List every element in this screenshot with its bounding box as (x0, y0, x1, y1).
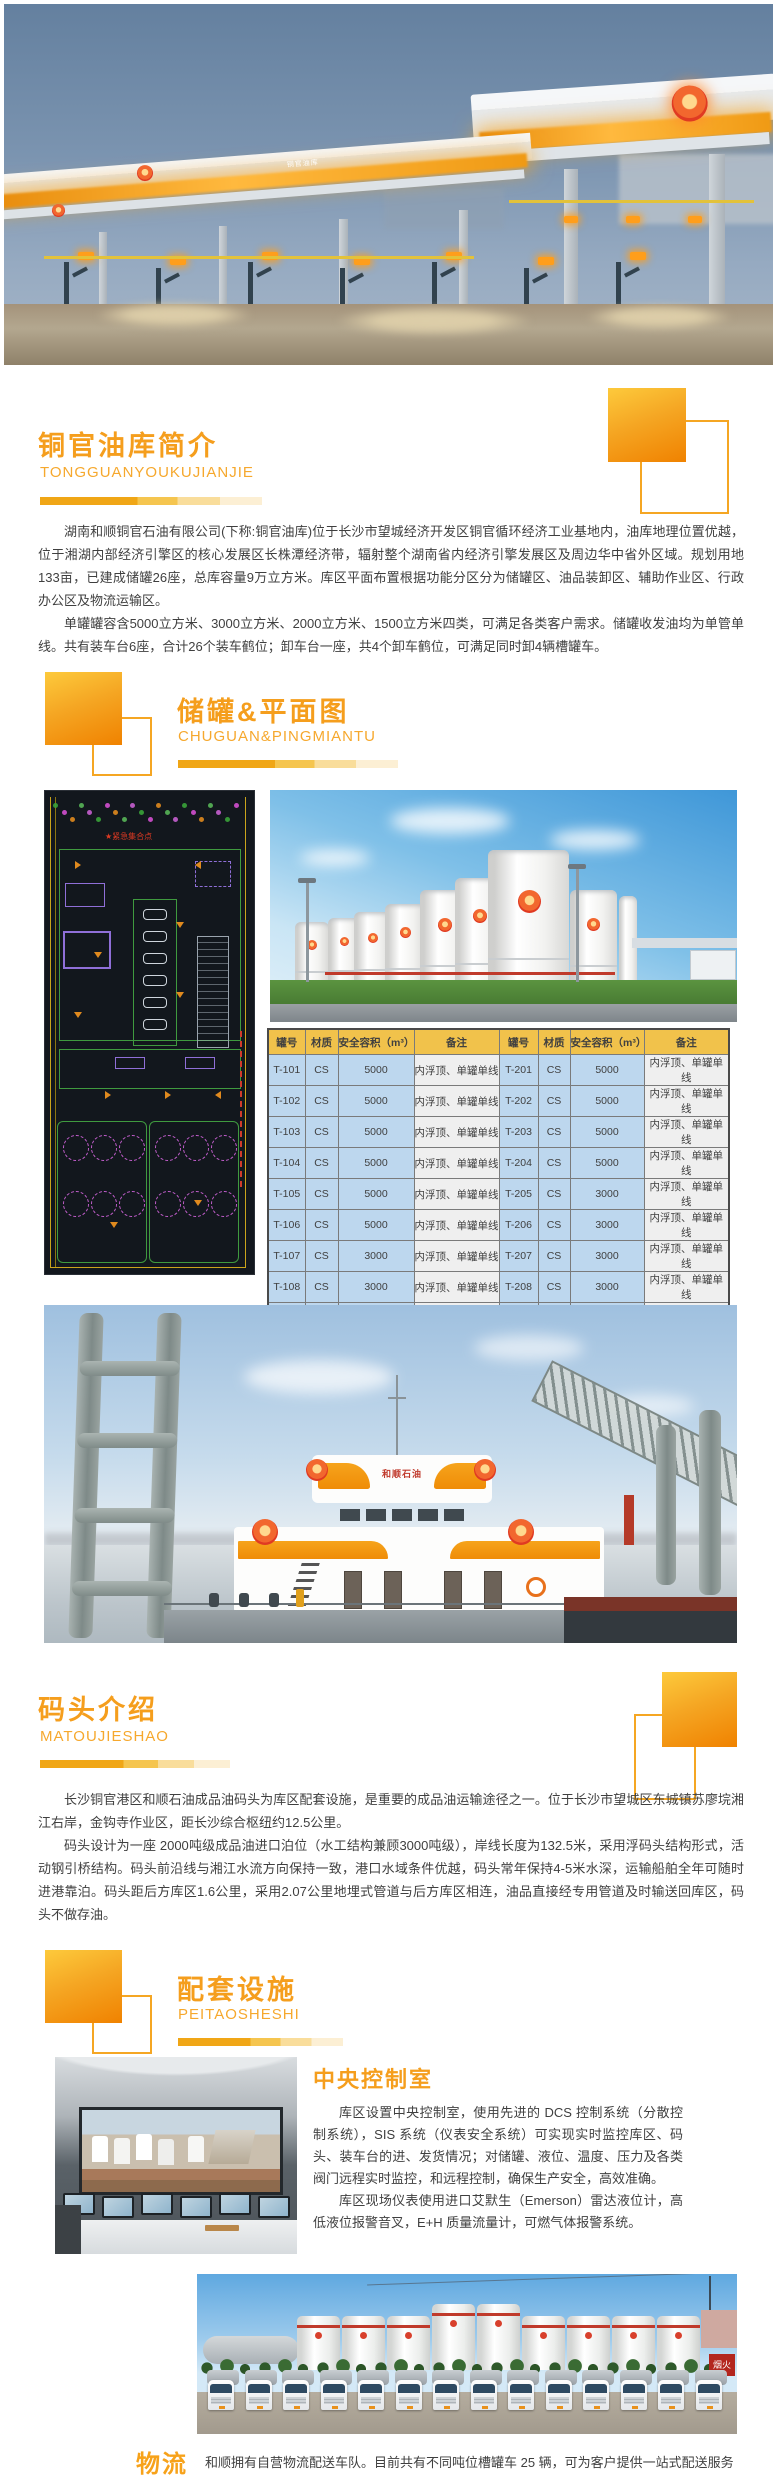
dock-ship-photo: 和顺石油 (44, 1305, 737, 1643)
tank-flower-logo (473, 909, 487, 923)
tanker-truck (580, 2370, 614, 2414)
table-cell: 内浮顶、单罐单线 (644, 1241, 729, 1272)
table-row: T-103CS5000内浮顶、单罐单线T-203CS5000内浮顶、单罐单线 (268, 1117, 729, 1148)
table-cell: T-106 (268, 1210, 305, 1241)
deck-railing (164, 1603, 604, 1605)
table-cell: T-202 (499, 1086, 538, 1117)
table-cell: 内浮顶、单罐单线 (414, 1117, 499, 1148)
table-header-cell: 安全容积（m³） (338, 1029, 414, 1055)
control-room-photo (55, 2057, 297, 2254)
control-room-title: 中央控制室 (313, 2062, 433, 2094)
tanker-truck-row (197, 2274, 737, 2434)
table-cell: 5000 (570, 1148, 644, 1179)
table-cell: T-203 (499, 1117, 538, 1148)
intro-subtitle: TONGGUANYOUKUJIANJIE (40, 464, 254, 481)
table-cell: CS (538, 1241, 570, 1272)
tanker-truck (318, 2370, 352, 2414)
table-cell: CS (538, 1117, 570, 1148)
table-row: T-108CS3000内浮顶、单罐单线T-208CS3000内浮顶、单罐单线 (268, 1272, 729, 1303)
tanker-truck (280, 2370, 314, 2414)
ship-hull (564, 1597, 737, 1643)
dock-subtitle: MATOUJIESHAO (40, 1728, 169, 1745)
tanker-truck (355, 2370, 389, 2414)
control-room-paragraphs: 库区设置中央控制室，使用先进的 DCS 控制系统（分散控制系统），SIS 系统（… (313, 2102, 683, 2234)
table-cell: 内浮顶、单罐单线 (644, 1086, 729, 1117)
bollard (269, 1593, 279, 1607)
table-cell: T-103 (268, 1117, 305, 1148)
gangway-column (656, 1425, 676, 1585)
table-cell: 3000 (570, 1210, 644, 1241)
table-cell: CS (538, 1086, 570, 1117)
cabinet (55, 2205, 81, 2254)
table-header-cell: 材质 (305, 1029, 338, 1055)
table-cell: T-105 (268, 1179, 305, 1210)
facilities-deco-square (45, 1950, 122, 2023)
table-cell: CS (305, 1086, 338, 1117)
yellow-hydrant (296, 1589, 304, 1607)
keyboard (205, 2225, 239, 2231)
table-header-cell: 罐号 (268, 1029, 305, 1055)
light-pool (94, 302, 254, 328)
tank-flower-logo (518, 890, 541, 913)
tank-farm-photo (270, 790, 737, 1022)
table-header-cell: 备注 (414, 1029, 499, 1055)
table-cell: 内浮顶、单罐单线 (414, 1086, 499, 1117)
tanker-truck (505, 2370, 539, 2414)
hero-photo: 铜官油库 (4, 4, 773, 365)
tank-flower-logo (340, 937, 349, 946)
table-cell: T-108 (268, 1272, 305, 1303)
light-pool (584, 304, 734, 330)
table-header-cell: 备注 (644, 1029, 729, 1055)
tanks-underline-bar (178, 760, 398, 768)
monitor (102, 2196, 134, 2218)
paragraph: 库区设置中央控制室，使用先进的 DCS 控制系统（分散控制系统），SIS 系统（… (313, 2102, 683, 2190)
intro-paragraphs: 湖南和顺铜官石油有限公司(下称:铜官油库)位于长沙市望城经济开发区铜官循环经济工… (38, 520, 744, 658)
tanker-truck (618, 2370, 652, 2414)
ship-mast (396, 1375, 398, 1463)
tanker-truck (693, 2370, 727, 2414)
loading-canopy (632, 938, 737, 948)
table-cell: T-102 (268, 1086, 305, 1117)
dock-paragraphs: 长沙铜官港区和顺石油成品油码头为库区配套设施，是重要的成品油运输途径之一。位于长… (38, 1788, 744, 1926)
yellow-railing (509, 200, 754, 203)
table-cell: 5000 (338, 1117, 414, 1148)
yellow-railing (44, 256, 474, 259)
paragraph: 单罐罐容含5000立方米、3000立方米、2000立方米、1500立方米四类，可… (38, 612, 744, 658)
red-pipeline (325, 972, 615, 975)
plan-boundary-red (240, 1031, 242, 1191)
console-desk (55, 2220, 297, 2254)
table-cell: T-107 (268, 1241, 305, 1272)
table-header-cell: 罐号 (499, 1029, 538, 1055)
table-cell: 内浮顶、单罐单线 (414, 1055, 499, 1086)
facilities-underline-bar (178, 2038, 343, 2046)
table-cell: 5000 (338, 1210, 414, 1241)
bollard (239, 1593, 249, 1607)
table-cell: 5000 (338, 1055, 414, 1086)
tank-flower-logo (438, 918, 452, 932)
table-header-row: 罐号材质安全容积（m³）备注罐号材质安全容积（m³）备注 (268, 1029, 729, 1055)
table-row: T-107CS3000内浮顶、单罐单线T-207CS3000内浮顶、单罐单线 (268, 1241, 729, 1272)
light-pole (306, 882, 309, 982)
light-pool (334, 306, 534, 336)
table-cell: CS (538, 1179, 570, 1210)
intro-deco-square (608, 388, 686, 462)
table-cell: T-206 (499, 1210, 538, 1241)
dock-title: 码头介绍 (38, 1688, 158, 1727)
facilities-subtitle: PEITAOSHESHI (178, 2006, 300, 2023)
table-cell: CS (538, 1210, 570, 1241)
monitor (141, 2193, 173, 2215)
tank-flower-logo (400, 927, 411, 938)
table-cell: 5000 (338, 1148, 414, 1179)
tank-flower-logo (587, 918, 600, 931)
tanks-deco-square (45, 672, 122, 745)
table-cell: T-104 (268, 1148, 305, 1179)
table-row: T-105CS5000内浮顶、单罐单线T-205CS3000内浮顶、单罐单线 (268, 1179, 729, 1210)
table-cell: 内浮顶、单罐单线 (644, 1210, 729, 1241)
table-cell: T-204 (499, 1148, 538, 1179)
table-cell: CS (305, 1117, 338, 1148)
table-cell: CS (305, 1272, 338, 1303)
page: 铜官油库 铜官油库简介 TONGGUANYOUKUJIANJIE 湖南和顺铜官石… (0, 0, 780, 2489)
table-cell: T-101 (268, 1055, 305, 1086)
tanker-truck (243, 2370, 277, 2414)
table-cell: CS (538, 1055, 570, 1086)
table-cell: 3000 (570, 1179, 644, 1210)
red-derrick (624, 1495, 634, 1545)
table-header-cell: 材质 (538, 1029, 570, 1055)
dock-deco-square (662, 1672, 737, 1747)
facilities-title: 配套设施 (177, 1968, 297, 2007)
table-row: T-101CS5000内浮顶、单罐单线T-201CS5000内浮顶、单罐单线 (268, 1055, 729, 1086)
wet-apron (270, 1004, 737, 1022)
table-cell: CS (305, 1179, 338, 1210)
bollard (209, 1593, 219, 1607)
storage-tank (488, 850, 569, 982)
paragraph: 库区现场仪表使用进口艾默生（Emerson）雷达液位计，高低液位报警音叉，E+H… (313, 2190, 683, 2234)
table-cell: 5000 (570, 1117, 644, 1148)
table-cell: CS (538, 1272, 570, 1303)
logistics-text: 和顺拥有自营物流配送车队。目前共有不同吨位槽罐车 25 辆，可为客户提供一站式配… (205, 2452, 750, 2471)
tanker-truck (393, 2370, 427, 2414)
table-cell: 内浮顶、单罐单线 (414, 1272, 499, 1303)
table-cell: T-207 (499, 1241, 538, 1272)
table-header-cell: 安全容积（m³） (570, 1029, 644, 1055)
table-cell: 内浮顶、单罐单线 (414, 1179, 499, 1210)
intro-title: 铜官油库简介 (38, 424, 218, 463)
table-cell: 5000 (338, 1179, 414, 1210)
table-cell: 内浮顶、单罐单线 (414, 1148, 499, 1179)
table-cell: 内浮顶、单罐单线 (414, 1241, 499, 1272)
tanker-truck (543, 2370, 577, 2414)
table-cell: 内浮顶、单罐单线 (644, 1117, 729, 1148)
table-row: T-102CS5000内浮顶、单罐单线T-202CS5000内浮顶、单罐单线 (268, 1086, 729, 1117)
tanks-title: 储罐&平面图 (177, 690, 350, 729)
table-cell: 3000 (338, 1241, 414, 1272)
main-deckhouse (234, 1527, 604, 1613)
paragraph: 码头设计为一座 2000吨级成品油进口泊位（水工结构兼顾3000吨级），岸线长度… (38, 1834, 744, 1926)
ship-name-sign: 和顺石油 (382, 1467, 422, 1480)
table-cell: 5000 (570, 1055, 644, 1086)
tanker-truck (430, 2370, 464, 2414)
light-pole (576, 868, 579, 982)
monitor (180, 2196, 212, 2218)
table-row: T-104CS5000内浮顶、单罐单线T-204CS5000内浮顶、单罐单线 (268, 1148, 729, 1179)
table-cell: CS (538, 1148, 570, 1179)
table-cell: 内浮顶、单罐单线 (644, 1148, 729, 1179)
storage-tank (295, 922, 329, 982)
table-cell: 内浮顶、单罐单线 (644, 1272, 729, 1303)
logistics-title: 物流 (136, 2444, 188, 2479)
table-row: T-106CS5000内浮顶、单罐单线T-206CS3000内浮顶、单罐单线 (268, 1210, 729, 1241)
table-cell: T-208 (499, 1272, 538, 1303)
plan-flow-arrows (45, 791, 254, 1274)
site-plan-cad: ★紧急集合点 (44, 790, 255, 1275)
table-cell: CS (305, 1148, 338, 1179)
pump-shed (690, 950, 736, 980)
upper-cabin: 和顺石油 (312, 1455, 492, 1503)
table-cell: T-205 (499, 1179, 538, 1210)
lawn (270, 980, 737, 1006)
table-cell: CS (305, 1055, 338, 1086)
pole-flower-logo (52, 204, 65, 217)
table-cell: 5000 (338, 1086, 414, 1117)
paragraph: 长沙铜官港区和顺石油成品油码头为库区配套设施，是重要的成品油运输途径之一。位于长… (38, 1788, 744, 1834)
tanker-truck (205, 2370, 239, 2414)
ship: 和顺石油 (44, 1305, 737, 1643)
table-cell: 5000 (570, 1086, 644, 1117)
table-cell: CS (305, 1210, 338, 1241)
fleet-photo: 烟火 (197, 2274, 737, 2434)
table-cell: 3000 (570, 1241, 644, 1272)
table-cell: 3000 (338, 1272, 414, 1303)
tanker-truck (655, 2370, 689, 2414)
tanks-subtitle: CHUGUAN&PINGMIANTU (178, 728, 376, 745)
intro-underline-bar (40, 497, 262, 505)
table-cell: 3000 (570, 1272, 644, 1303)
table-cell: 内浮顶、单罐单线 (414, 1210, 499, 1241)
dock-underline-bar (40, 1760, 230, 1768)
life-ring (526, 1577, 546, 1597)
table-cell: 内浮顶、单罐单线 (644, 1055, 729, 1086)
table-cell: CS (305, 1241, 338, 1272)
pontoon-deck (164, 1610, 604, 1643)
monitor (219, 2193, 251, 2215)
tanker-truck (468, 2370, 502, 2414)
monitor (258, 2196, 290, 2218)
table-cell: T-201 (499, 1055, 538, 1086)
paragraph: 湖南和顺铜官石油有限公司(下称:铜官油库)位于长沙市望城经济开发区铜官循环经济工… (38, 520, 744, 612)
table-cell: 内浮顶、单罐单线 (644, 1179, 729, 1210)
tank-flower-logo (368, 933, 378, 943)
gangway-column (699, 1410, 721, 1595)
